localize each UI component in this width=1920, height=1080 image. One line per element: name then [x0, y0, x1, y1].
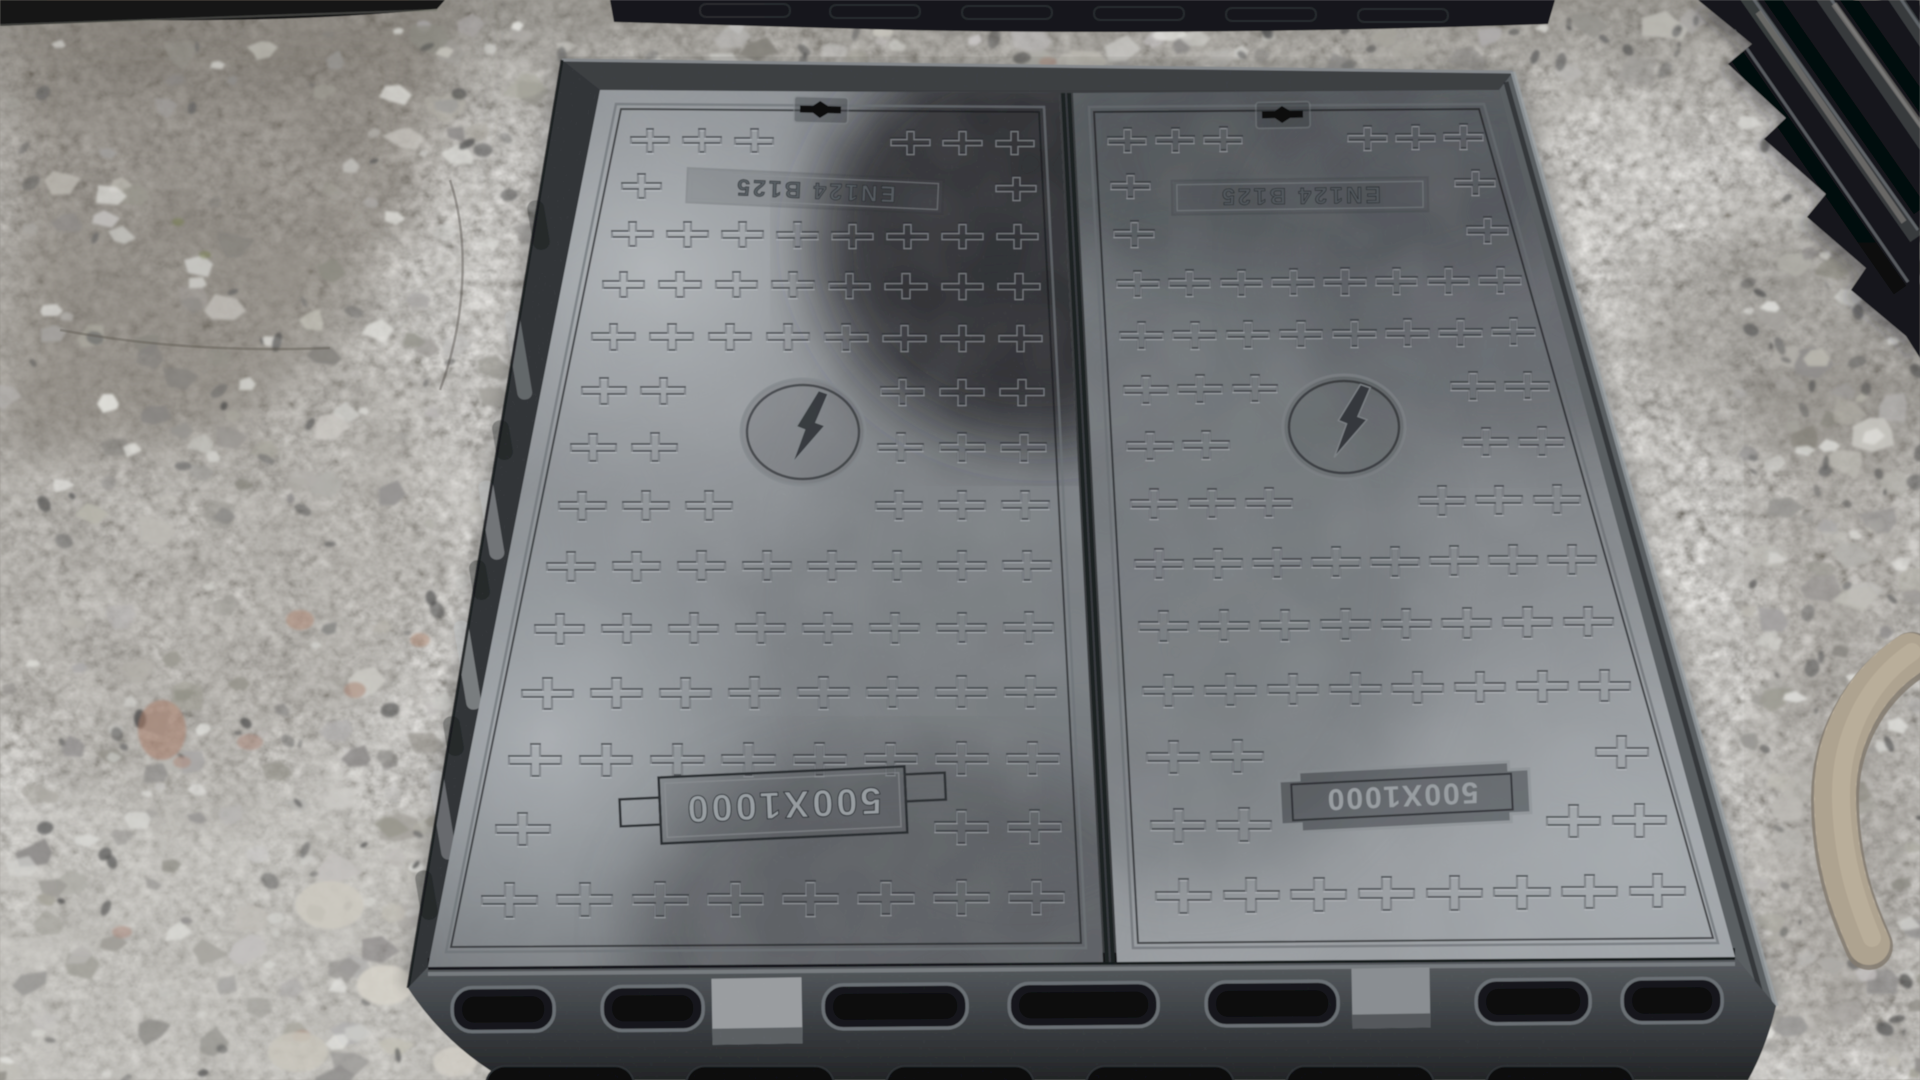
svg-text:EN124 B125: EN124 B125 — [1219, 182, 1381, 210]
svg-text:500X1000: 500X1000 — [683, 779, 882, 830]
